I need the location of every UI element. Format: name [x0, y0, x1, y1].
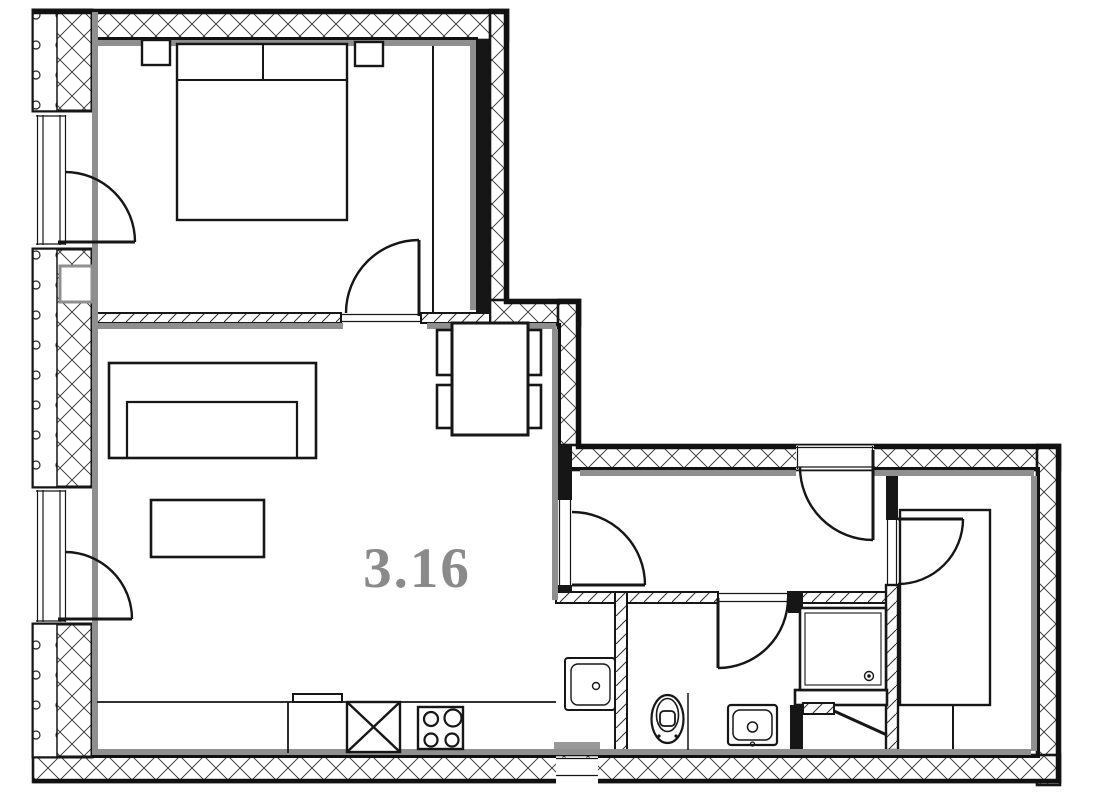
inner-face-bottom: [98, 749, 1031, 755]
insulation-strip-top: [33, 10, 57, 111]
insulation-strip-middle: [33, 249, 57, 487]
closet: [900, 510, 990, 705]
right-room-wall-upper: [886, 470, 898, 520]
inner-face-hall-top-a: [580, 470, 796, 476]
burner-bottom-right: [446, 734, 459, 747]
inner-face-right: [1031, 476, 1037, 751]
bedroom-right-wall: [476, 40, 490, 313]
bath-left-wall: [615, 592, 627, 750]
coffee-table: [151, 500, 264, 557]
hall-left-wall-upper: [558, 445, 572, 500]
wash-basin: [728, 705, 777, 746]
wall-niche: [60, 266, 92, 302]
entry-sill: [554, 742, 600, 750]
entrance-door-opening: [796, 446, 874, 470]
bottom-entry-opening: [554, 742, 600, 785]
kitchen-wall-shelf: [293, 694, 342, 702]
hall-door-opening: [556, 500, 574, 585]
floor-plan-page: 3.16: [0, 0, 1096, 794]
inner-face-hall-top-b: [874, 470, 1034, 476]
right-room-wall-lower: [886, 585, 898, 750]
kitchen-sink: [565, 658, 615, 710]
wall-bottom: [33, 755, 1060, 782]
niche-top-wall: [803, 703, 834, 714]
toilet: [652, 695, 684, 743]
shower: [800, 608, 886, 690]
inner-face-bedroom-right: [470, 46, 476, 310]
burner-bottom-left: [425, 734, 438, 747]
kitchen-cabinet-x: [347, 702, 400, 752]
insulation-strip-bottom: [33, 624, 57, 757]
wall-top: [33, 10, 508, 40]
inner-face-left: [92, 12, 98, 755]
burner-top-right: [445, 710, 462, 727]
bath-top-wall-left: [556, 592, 718, 603]
burner-top-left: [424, 712, 438, 726]
inner-face-living-right: [552, 329, 558, 600]
room-number-label: 3.16: [363, 537, 471, 600]
niche-left-wall: [790, 705, 803, 750]
nightstand-left: [142, 40, 170, 65]
bedroom-furniture: [142, 40, 383, 220]
floor-plan-canvas: 3.16: [0, 0, 1096, 794]
nightstand-right: [355, 42, 383, 66]
bath-top-wall-right: [788, 592, 890, 603]
sofa: [109, 363, 316, 458]
inner-face-living-top-a: [98, 323, 343, 329]
stove: [418, 707, 463, 749]
bedroom-wall-left-part: [95, 313, 341, 323]
dining-table: [452, 323, 528, 435]
